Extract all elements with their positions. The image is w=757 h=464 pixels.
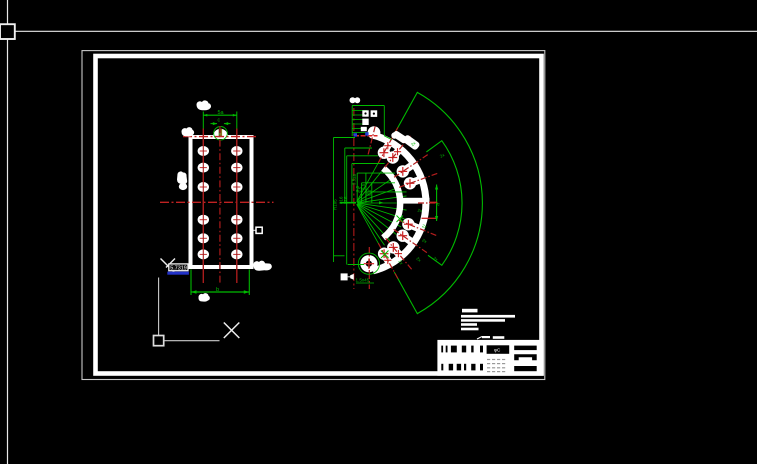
- svg-text:1.5x45: 1.5x45: [356, 278, 370, 283]
- svg-text:5a: 5a: [218, 110, 225, 116]
- svg-text:9.5: 9.5: [367, 189, 372, 196]
- svg-text:b: b: [216, 287, 219, 293]
- svg-text:R105: R105: [333, 199, 338, 210]
- svg-text:816: 816: [343, 196, 348, 204]
- svg-text:5.7319: 5.7319: [170, 266, 187, 272]
- svg-text:38: 38: [352, 173, 357, 179]
- svg-text:φC: φC: [494, 348, 501, 353]
